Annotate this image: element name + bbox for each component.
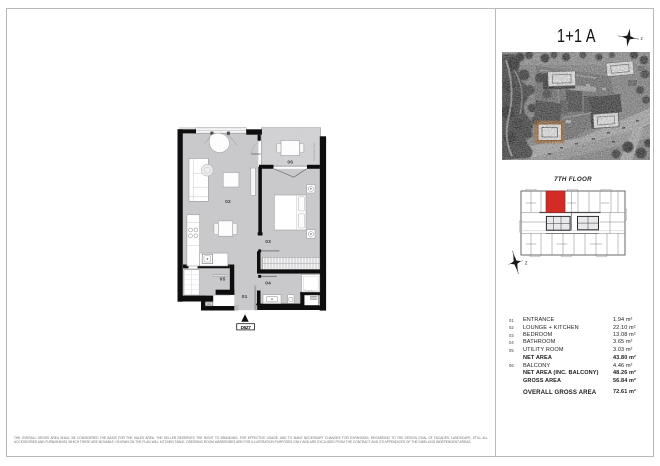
- svg-text:D5Z7: D5Z7: [241, 325, 252, 330]
- svg-text:06: 06: [287, 160, 293, 166]
- svg-text:z: z: [525, 261, 528, 267]
- svg-text:z: z: [641, 36, 644, 41]
- svg-text:04: 04: [265, 281, 271, 287]
- svg-text:03: 03: [265, 239, 271, 245]
- svg-text:05: 05: [220, 276, 226, 282]
- svg-text:01: 01: [242, 294, 248, 300]
- svg-text:OPEN BALCONY: OPEN BALCONY: [313, 142, 316, 161]
- svg-text:02: 02: [225, 199, 231, 205]
